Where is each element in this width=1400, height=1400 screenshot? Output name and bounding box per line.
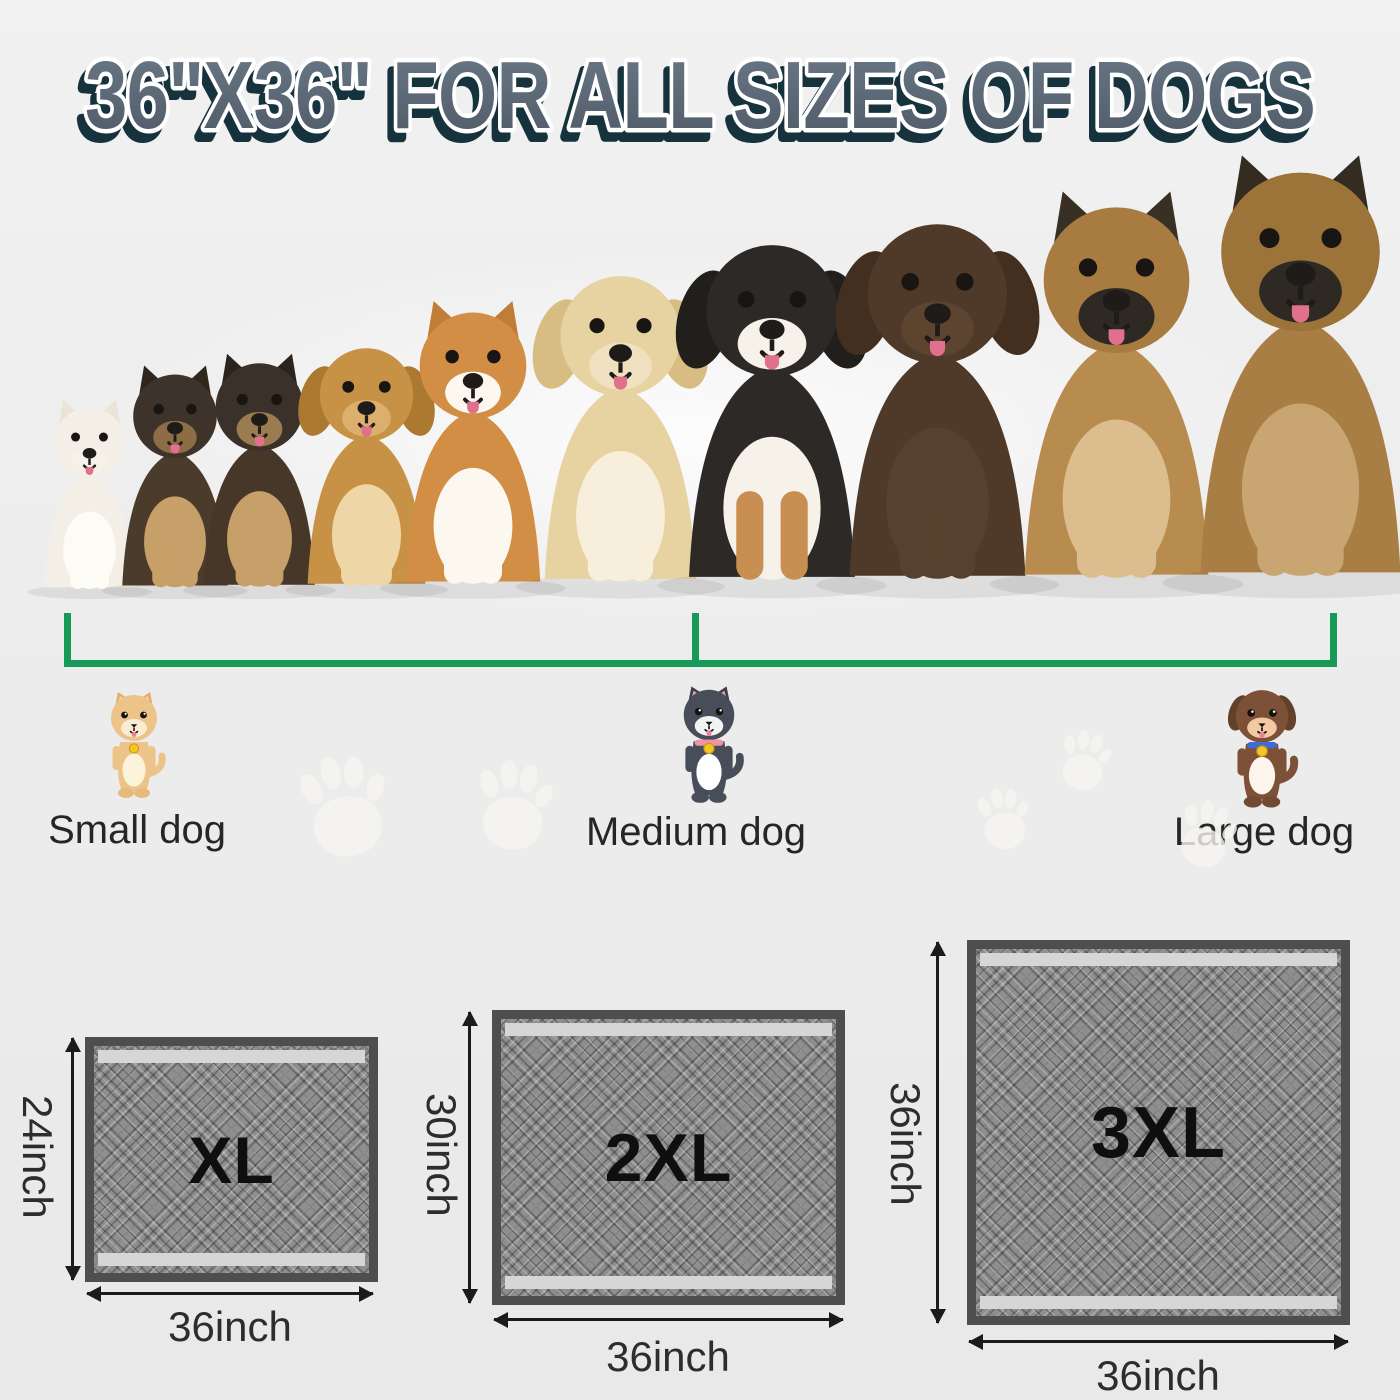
pad-xl: XL	[85, 1037, 378, 1282]
paw-print-icon	[277, 737, 413, 873]
size-bracket-tick-left	[64, 613, 71, 663]
german-shepherd-2-photo	[1128, 145, 1400, 600]
small-dog-label: Small dog	[48, 808, 226, 853]
pad-xl-size-label: XL	[188, 1122, 274, 1198]
medium-dog-label: Medium dog	[586, 810, 806, 855]
pad-xl-width-arrow	[87, 1292, 373, 1295]
large-dog-icon	[1205, 682, 1319, 810]
medium-dog-icon-slot	[654, 682, 764, 805]
large-dog-icon-slot	[1205, 682, 1319, 810]
medium-dog-icon	[654, 682, 764, 805]
pad-2xl: 2XL	[492, 1010, 845, 1305]
pad-3xl-width-arrow	[969, 1340, 1348, 1343]
pad-3xl-width-label: 36inch	[1096, 1352, 1220, 1400]
size-bracket-line	[64, 660, 1337, 667]
paw-print-icon	[457, 747, 572, 862]
dogs-row	[0, 0, 1400, 620]
pad-3xl-height-label: 36inch	[884, 1082, 926, 1206]
pad-2xl-bottom-strip	[505, 1276, 832, 1289]
pad-3xl-bottom-strip	[980, 1296, 1337, 1309]
pad-xl-bottom-strip	[98, 1253, 365, 1266]
product-infographic: 36"X36" FOR ALL SIZES OF DOGS 36"X36" FO…	[0, 0, 1400, 1400]
pad-2xl-width-label: 36inch	[606, 1333, 730, 1381]
size-bracket-tick-middle	[692, 613, 699, 663]
small-dog-icon-slot	[84, 688, 184, 800]
pad-3xl-height-arrow	[936, 942, 939, 1323]
pad-xl-height-label: 24inch	[16, 1095, 58, 1219]
pad-2xl-height-arrow	[468, 1012, 471, 1303]
size-bracket-tick-right	[1330, 613, 1337, 663]
paw-print-icon	[966, 780, 1043, 857]
pad-2xl-width-arrow	[494, 1318, 843, 1321]
pad-xl-height-arrow	[71, 1038, 74, 1280]
pad-2xl-top-strip	[505, 1023, 832, 1036]
pad-3xl-top-strip	[980, 953, 1337, 966]
pad-2xl-size-label: 2XL	[605, 1119, 733, 1197]
pad-2xl-height-label: 30inch	[420, 1093, 462, 1217]
pad-xl-top-strip	[98, 1050, 365, 1063]
small-dog-icon	[84, 688, 184, 800]
pad-3xl-size-label: 3XL	[1091, 1092, 1226, 1174]
pad-3xl: 3XL	[967, 940, 1350, 1325]
paw-print-icon	[1043, 718, 1126, 801]
pad-xl-width-label: 36inch	[168, 1303, 292, 1351]
